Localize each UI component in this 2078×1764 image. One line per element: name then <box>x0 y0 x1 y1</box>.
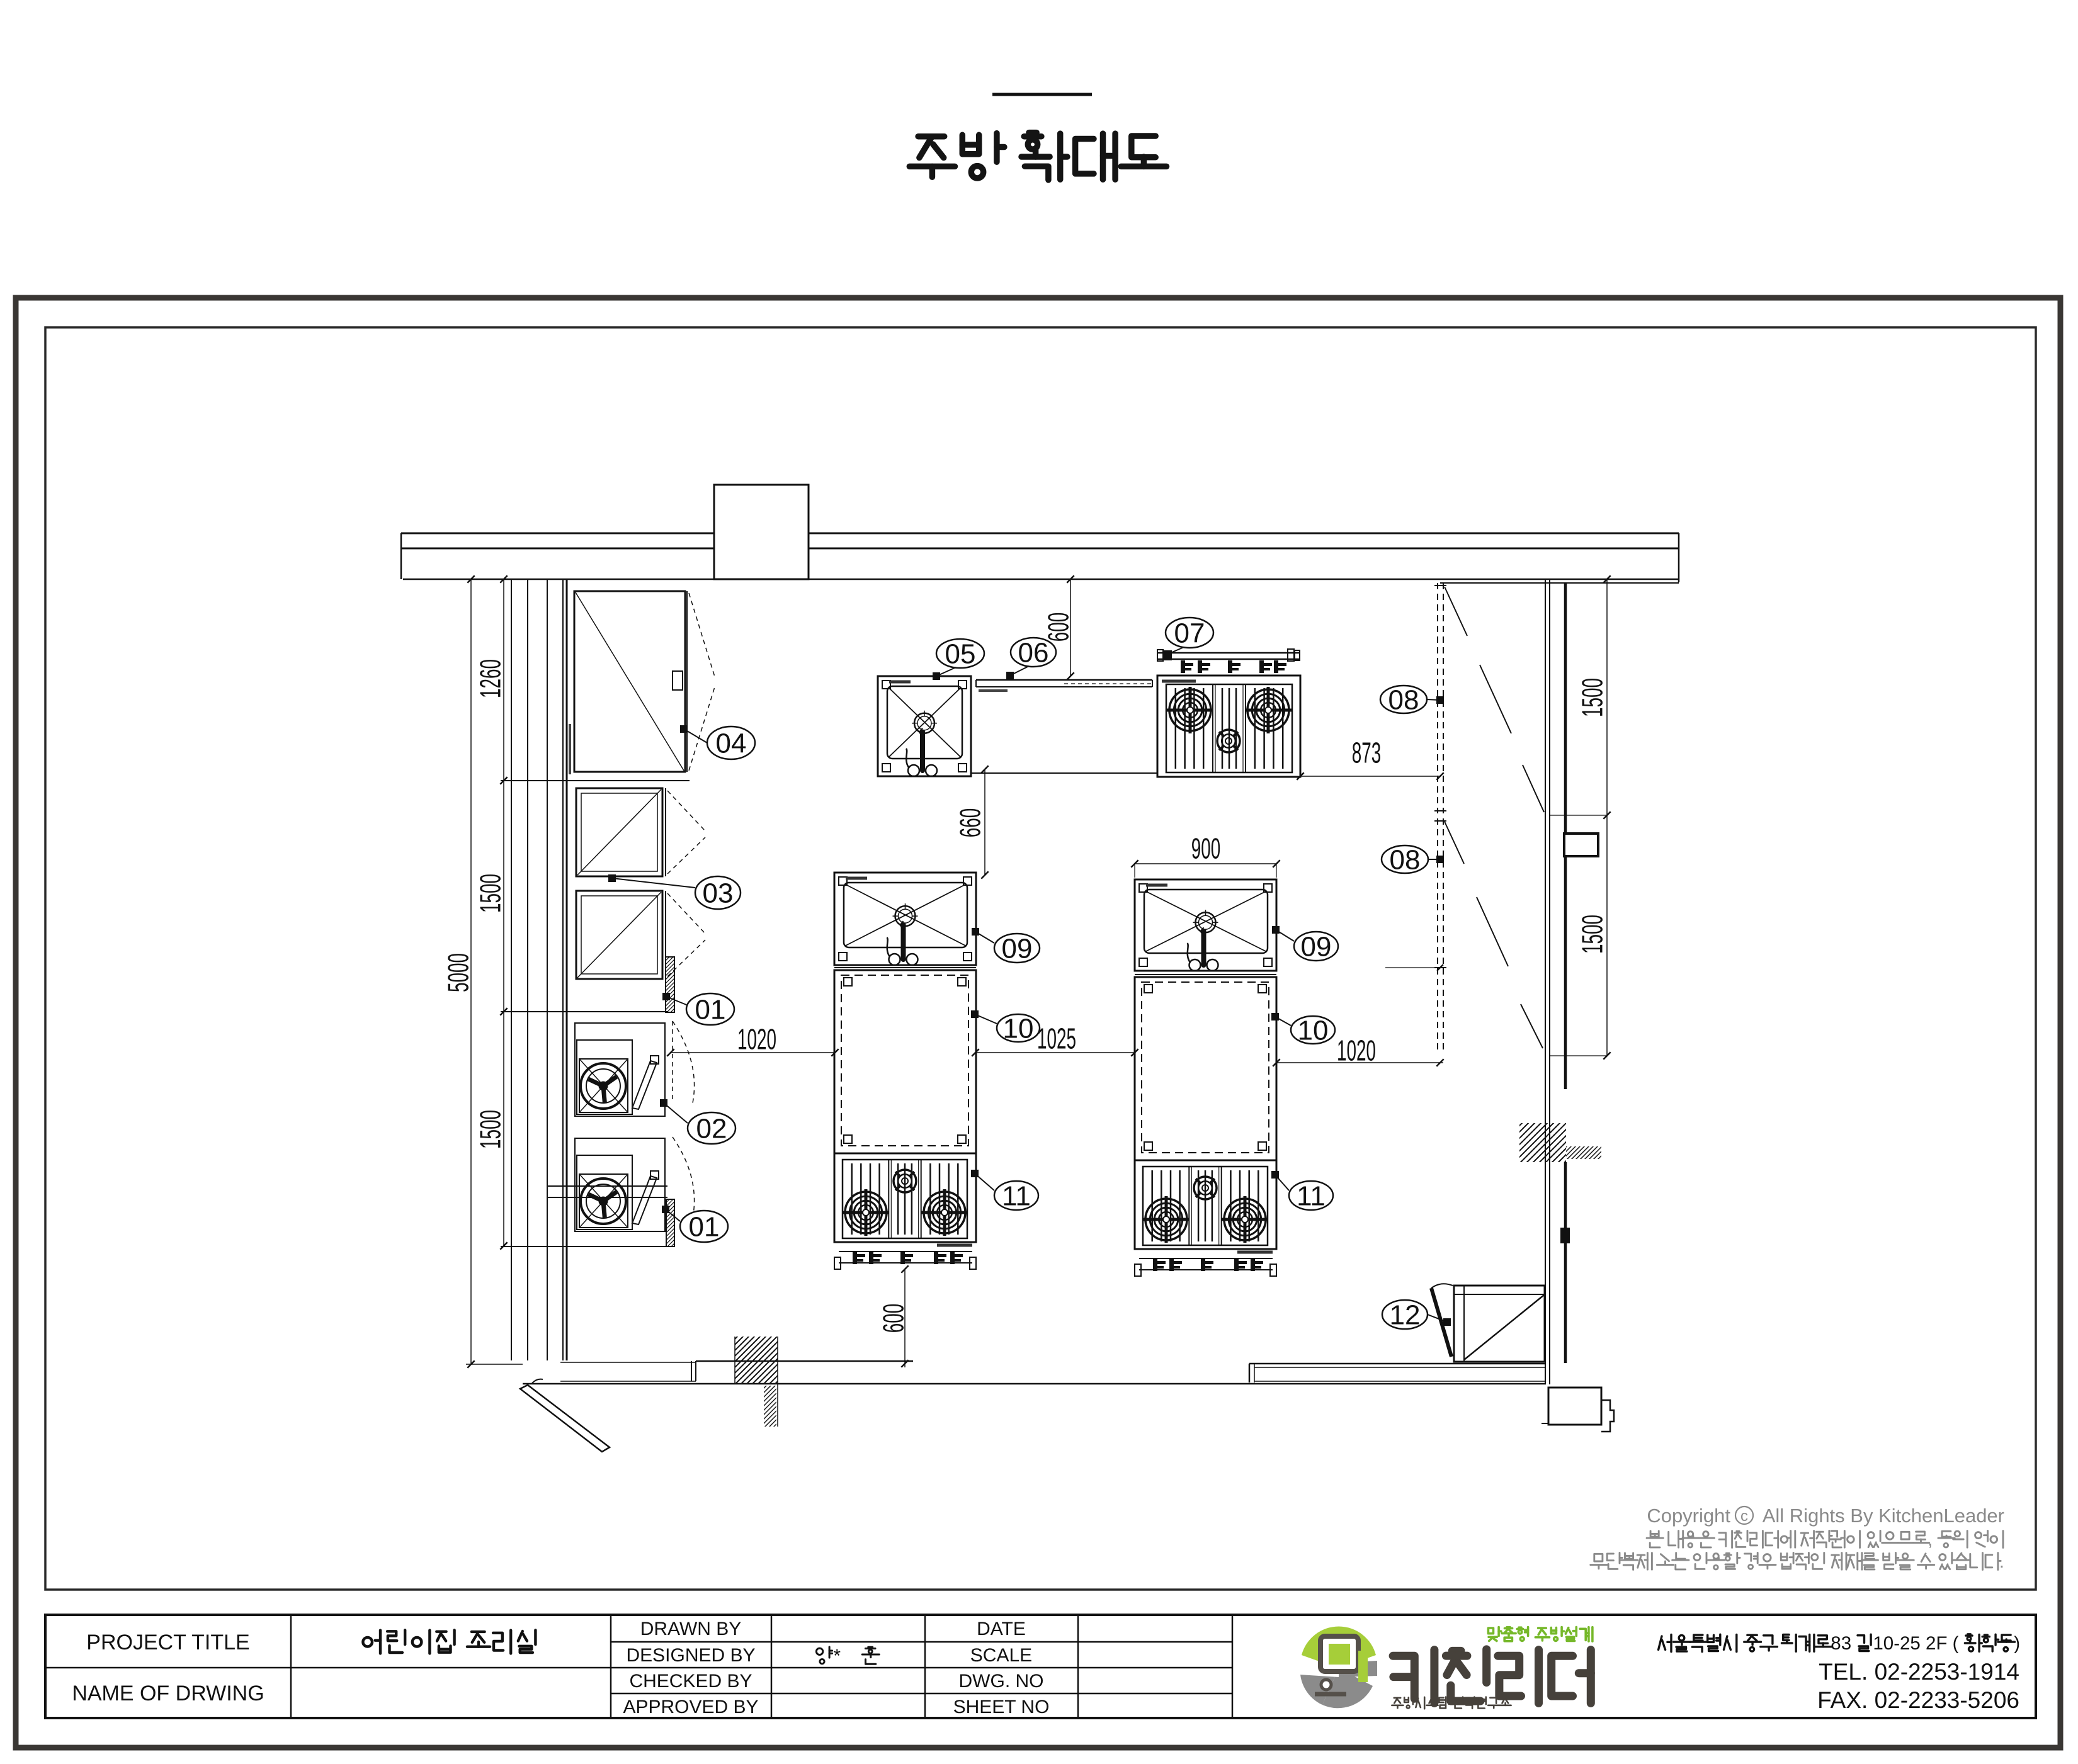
svg-text:c: c <box>1740 1508 1748 1525</box>
svg-text:1500: 1500 <box>1576 678 1608 717</box>
svg-text:DRAWN BY: DRAWN BY <box>640 1619 742 1639</box>
svg-text:04: 04 <box>716 728 747 759</box>
svg-text:06: 06 <box>1018 638 1049 669</box>
svg-text:FAX. 02-2233-5206: FAX. 02-2233-5206 <box>1817 1687 2019 1713</box>
svg-text:02: 02 <box>696 1114 727 1145</box>
svg-text:03: 03 <box>703 878 734 909</box>
svg-text:NAME OF DRWING: NAME OF DRWING <box>72 1682 264 1705</box>
svg-text:Copyright: Copyright <box>1647 1505 1730 1527</box>
svg-text:All Rights By KitchenLeader: All Rights By KitchenLeader <box>1763 1505 2004 1527</box>
svg-text:10: 10 <box>1298 1015 1329 1046</box>
svg-text:01: 01 <box>689 1212 720 1243</box>
svg-text:1260: 1260 <box>474 659 506 698</box>
svg-text:11: 11 <box>1002 1181 1031 1212</box>
svg-text:873: 873 <box>1352 736 1382 769</box>
svg-text:1500: 1500 <box>474 1110 506 1149</box>
svg-text:.: . <box>1999 1552 2004 1572</box>
svg-text:01: 01 <box>695 995 726 1026</box>
svg-text:TEL. 02-2253-1914: TEL. 02-2253-1914 <box>1819 1659 2019 1685</box>
svg-text:08: 08 <box>1388 685 1419 716</box>
svg-text:SHEET NO: SHEET NO <box>953 1697 1050 1717</box>
svg-text:1500: 1500 <box>474 874 506 913</box>
svg-text:DESIGNED BY: DESIGNED BY <box>626 1645 755 1666</box>
svg-text:SCALE: SCALE <box>970 1645 1032 1666</box>
svg-text:5000: 5000 <box>441 953 474 992</box>
svg-text:83: 83 <box>1831 1633 1851 1654</box>
svg-text:APPROVED BY: APPROVED BY <box>623 1697 758 1717</box>
svg-text:09: 09 <box>1002 934 1033 964</box>
svg-text:PROJECT TITLE: PROJECT TITLE <box>86 1631 249 1654</box>
svg-text:,: , <box>1928 1530 1933 1550</box>
svg-text:10: 10 <box>1003 1014 1034 1044</box>
svg-text:900: 900 <box>1191 832 1221 864</box>
svg-text:12: 12 <box>1390 1300 1421 1331</box>
svg-text:*: * <box>833 1646 841 1666</box>
svg-text:05: 05 <box>945 639 976 670</box>
svg-text:DWG. NO: DWG. NO <box>959 1671 1044 1692</box>
svg-text:600: 600 <box>877 1304 909 1333</box>
svg-text:10-25 2F (: 10-25 2F ( <box>1873 1633 1958 1654</box>
svg-text:): ) <box>2014 1633 2020 1654</box>
svg-text:1020: 1020 <box>737 1022 776 1055</box>
svg-text:CHECKED BY: CHECKED BY <box>629 1671 752 1692</box>
svg-text:08: 08 <box>1390 845 1421 876</box>
svg-text:660: 660 <box>953 808 986 838</box>
svg-text:07: 07 <box>1174 618 1205 649</box>
svg-text:1025: 1025 <box>1037 1022 1076 1054</box>
svg-text:DATE: DATE <box>977 1619 1026 1639</box>
svg-text:09: 09 <box>1301 932 1332 963</box>
svg-text:1020: 1020 <box>1337 1034 1376 1066</box>
svg-text:1500: 1500 <box>1576 915 1608 954</box>
svg-text:11: 11 <box>1297 1181 1326 1212</box>
